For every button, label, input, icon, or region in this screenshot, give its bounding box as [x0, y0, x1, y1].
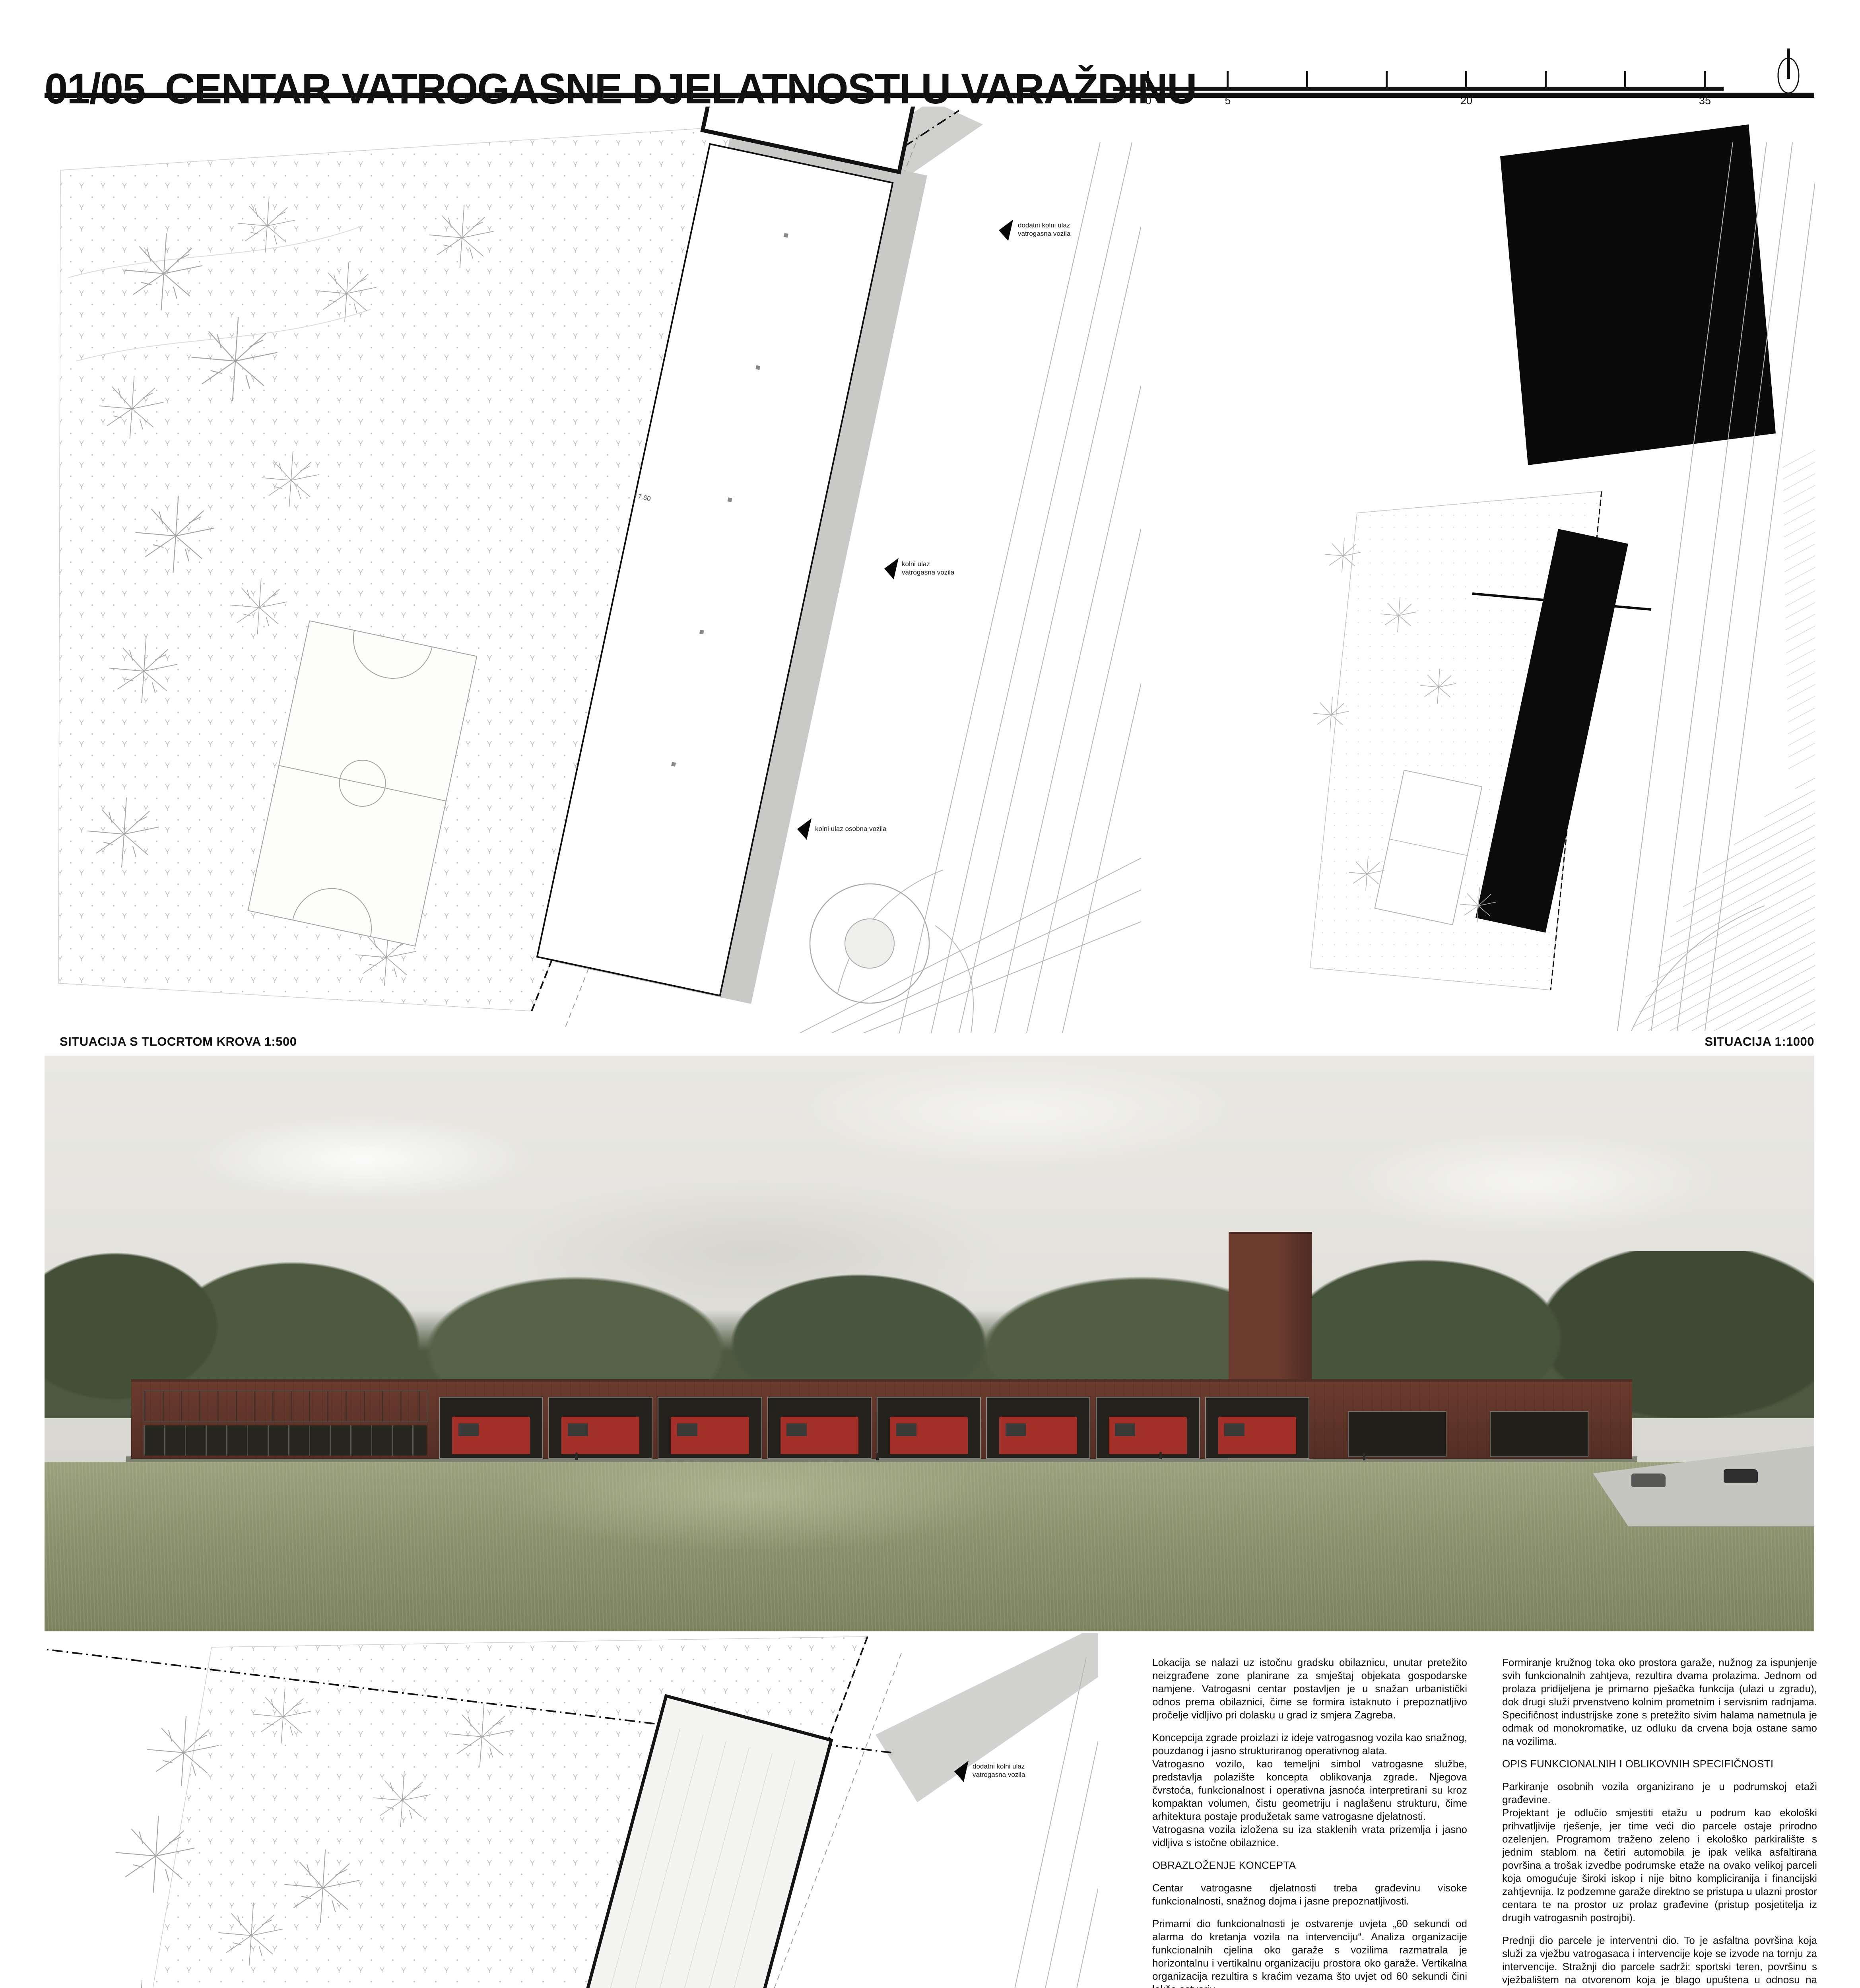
- fire-truck: [999, 1417, 1077, 1454]
- fire-truck: [671, 1417, 749, 1454]
- section-heading: OPIS FUNKCIONALNIH I OBLIKOVNIH SPECIFIČ…: [1502, 1757, 1817, 1771]
- presentation-board: 01/05CENTAR VATROGASNE DJELATNOSTI U VAR…: [0, 0, 1860, 1988]
- caption-roof-plan: SITUACIJA S TLOCRTOM KROVA 1:500: [60, 1035, 297, 1049]
- scale-tick: [1227, 71, 1229, 87]
- wing-opening: [1490, 1411, 1588, 1457]
- lower-glazing: [144, 1425, 427, 1456]
- person: [1363, 1453, 1365, 1460]
- scale-bar-line: [1113, 87, 1724, 91]
- scale-tick: [1147, 71, 1149, 87]
- main-render: [45, 1056, 1814, 1631]
- fire-station-building: [131, 1379, 1632, 1459]
- garage-door: [1205, 1397, 1309, 1459]
- garage-door: [548, 1397, 652, 1459]
- garage-door: [767, 1397, 872, 1459]
- label-fire-entry: kolni ulaz vatrogasna vozila: [902, 560, 954, 577]
- section-heading: OBRAZLOŽENJE KONCEPTA: [1152, 1859, 1467, 1872]
- fire-truck: [1109, 1417, 1187, 1454]
- scale-bar: 0 5 20 35: [1113, 48, 1728, 111]
- scale-label: 0: [1132, 95, 1164, 107]
- project-title: CENTAR VATROGASNE DJELATNOSTI U VARAŽDIN…: [165, 64, 1196, 113]
- north-arrow-icon: [1769, 45, 1808, 96]
- car: [1631, 1474, 1666, 1487]
- wing-opening: [1348, 1411, 1446, 1457]
- fire-truck: [1218, 1417, 1296, 1454]
- garage-door: [658, 1397, 762, 1459]
- scale-tick: [1306, 71, 1308, 87]
- paragraph: Centar vatrogasne djelatnosti treba građ…: [1152, 1881, 1467, 1908]
- scale-tick: [1386, 71, 1388, 87]
- site-plan-ground: fire combat 6x60 vježbalište na otvoreno…: [45, 1633, 1098, 1988]
- car: [1724, 1469, 1758, 1483]
- foreground-meadow: [45, 1462, 1814, 1631]
- office-wing: [131, 1379, 439, 1459]
- label-additional-entry: dodatni kolni ulaz vatrogasna vozila: [1018, 221, 1070, 238]
- neighbour-building: [1500, 124, 1776, 465]
- ground-plan-drawing: [45, 1633, 1098, 1988]
- garage-bays: [439, 1397, 1309, 1459]
- scale-tick: [1624, 71, 1626, 87]
- upper-glazing: [144, 1390, 428, 1422]
- scale-tick: [1545, 71, 1547, 87]
- garage-door: [1096, 1397, 1200, 1459]
- person: [575, 1452, 578, 1460]
- site-plan-roof: dodatni kolni ulaz vatrogasna vozila kol…: [45, 107, 1141, 1033]
- hatched-area: [1631, 771, 1815, 1031]
- label-car-entry: kolni ulaz osobna vozila: [815, 825, 887, 833]
- fire-truck: [452, 1417, 530, 1454]
- garage-door: [877, 1397, 981, 1459]
- scale-label: 35: [1689, 95, 1721, 107]
- person: [1159, 1452, 1162, 1459]
- site-plan-roof-drawing: [45, 107, 1141, 1033]
- paragraph: Prednji dio parcele je interventni dio. …: [1502, 1934, 1817, 1988]
- page-title: 01/05CENTAR VATROGASNE DJELATNOSTI U VAR…: [45, 64, 1196, 113]
- garage-door: [439, 1397, 543, 1459]
- paragraph: Koncepcija zgrade proizlazi iz ideje vat…: [1152, 1731, 1467, 1849]
- scale-label: 5: [1212, 95, 1244, 107]
- paragraph: Formiranje kružnog toka oko prostora gar…: [1502, 1656, 1817, 1748]
- fire-truck: [561, 1417, 639, 1454]
- hatched-area: [1782, 448, 1815, 771]
- grass-texture: [45, 1462, 1814, 1631]
- essay-column-1: Lokacija se nalazi uz istočnu gradsku ob…: [1152, 1656, 1467, 1988]
- roundabout-island: [845, 919, 894, 968]
- site-plan-situation: [1272, 118, 1815, 1031]
- paragraph: Primarni dio funkcionalnosti je ostvaren…: [1152, 1917, 1467, 1988]
- paragraph: Parkiranje osobnih vozila organizirano j…: [1502, 1780, 1817, 1924]
- scale-tick: [1704, 71, 1706, 87]
- sheet-number: 01/05: [45, 64, 145, 113]
- label-additional-entry: dodatni kolni ulaz vatrogasna vozila: [973, 1762, 1025, 1779]
- situation-drawing: [1272, 118, 1815, 1031]
- person: [876, 1453, 879, 1460]
- service-wing: [1309, 1379, 1632, 1459]
- caption-situation: SITUACIJA 1:1000: [1705, 1035, 1814, 1049]
- essay-column-2: Formiranje kružnog toka oko prostora gar…: [1502, 1656, 1817, 1988]
- garage-door: [986, 1397, 1090, 1459]
- paragraph: Lokacija se nalazi uz istočnu gradsku ob…: [1152, 1656, 1467, 1722]
- fire-truck: [781, 1417, 858, 1454]
- fire-truck: [890, 1417, 968, 1454]
- scale-label: 20: [1450, 95, 1482, 107]
- scale-tick: [1465, 71, 1467, 87]
